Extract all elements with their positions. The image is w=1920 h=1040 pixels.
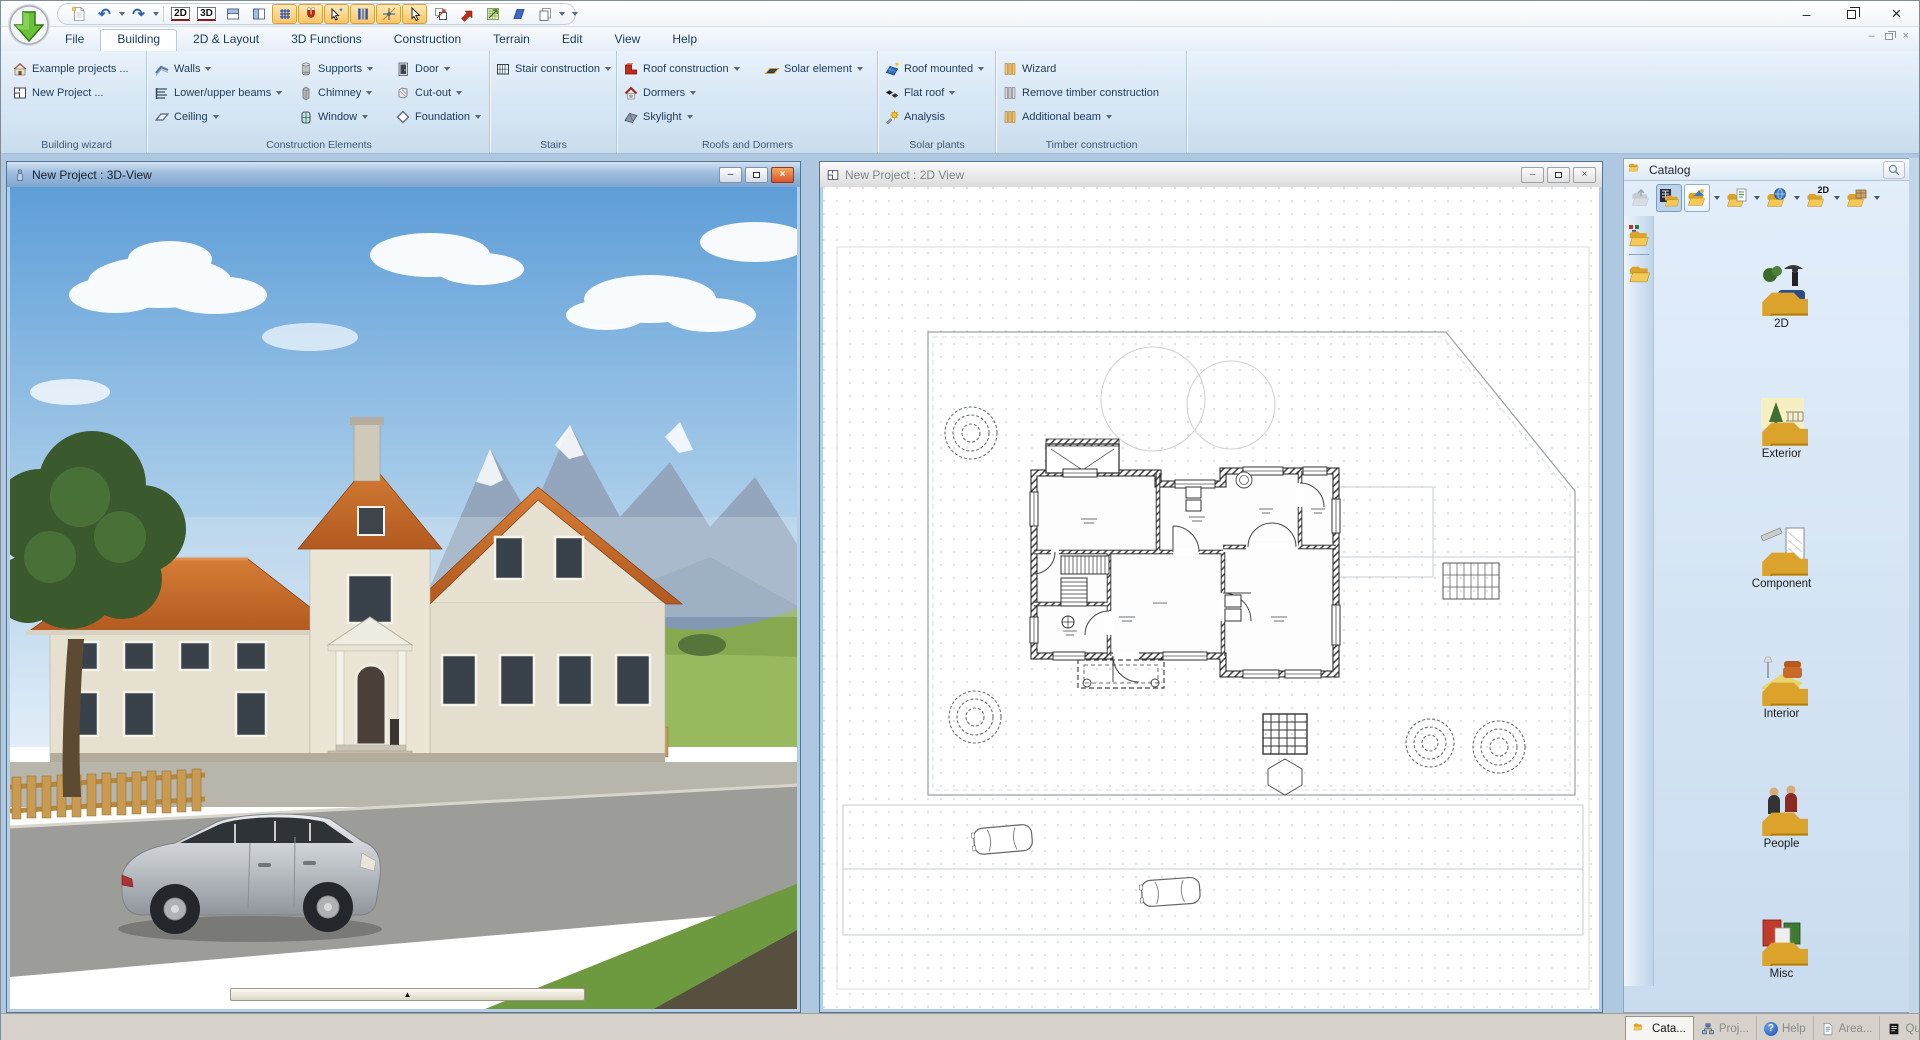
chevron-down-icon xyxy=(949,91,955,95)
catalog-item-list: 2D Exterior Component xyxy=(1654,216,1909,1010)
catalog-item-label: Misc xyxy=(1737,968,1827,980)
chevron-down-icon xyxy=(475,115,481,119)
ribbon-item-flat-roof[interactable]: Flat roof xyxy=(881,82,987,103)
3d-view-title-bar[interactable]: New Project : 3D-View – × xyxy=(7,162,800,187)
close-icon: × xyxy=(1892,4,1902,24)
main-title-bar[interactable]: ↶ ↷ 2D 3D – × xyxy=(1,1,1919,27)
ribbon-group-label: Construction Elements xyxy=(149,139,489,151)
customize-toolbar-icon[interactable] xyxy=(572,12,578,16)
ribbon-item-foundation[interactable]: Foundation xyxy=(392,106,484,127)
ribbon-item-label: Supports xyxy=(318,63,362,75)
ribbon-item-new-project[interactable]: New Project ... xyxy=(9,82,132,103)
catalog-item-label: Component xyxy=(1737,578,1827,590)
tab-help[interactable]: ? Help xyxy=(1757,1016,1814,1040)
quantities-tab-icon xyxy=(1887,1022,1901,1036)
chevron-down-icon xyxy=(456,91,462,95)
parallel-guides-toggle-button[interactable] xyxy=(350,4,375,24)
flat-roof-icon xyxy=(884,85,900,101)
tab-project[interactable]: Proj... xyxy=(1694,1016,1757,1040)
application-window: ↶ ↷ 2D 3D – × xyxy=(0,0,1920,1040)
chevron-down-icon xyxy=(687,115,693,119)
ribbon-item-roof-mounted[interactable]: Roof mounted xyxy=(881,58,987,79)
tilt-plane-button[interactable] xyxy=(506,4,531,24)
tab-2d-layout[interactable]: 2D & Layout xyxy=(177,29,275,51)
3d-view-title: New Project : 3D-View xyxy=(32,168,714,182)
grid-toggle-button[interactable] xyxy=(272,4,297,24)
ribbon-group-stairs: Stair construction Stairs xyxy=(491,51,617,153)
tab-edit[interactable]: Edit xyxy=(546,29,599,51)
chevron-down-icon xyxy=(857,67,863,71)
catalog-item-exterior[interactable]: Exterior xyxy=(1737,394,1827,460)
2d-view-canvas[interactable] xyxy=(823,187,1599,1009)
tab-label: Cata... xyxy=(1652,1023,1686,1035)
chimney-icon xyxy=(298,85,314,101)
2d-view-minimize-button[interactable]: – xyxy=(1521,167,1544,183)
2d-view-close-button[interactable]: × xyxy=(1573,167,1596,183)
ribbon-item-lower-upper-beams[interactable]: Lower/upper beams xyxy=(151,82,285,103)
catalog-item-component[interactable]: Component xyxy=(1737,524,1827,590)
ribbon-tab-row: File Building 2D & Layout 3D Functions C… xyxy=(1,27,1919,51)
catalog-item-people[interactable]: People xyxy=(1737,784,1827,850)
move-element-button[interactable] xyxy=(454,4,479,24)
ribbon-item-label: Ceiling xyxy=(174,111,208,123)
ribbon-group-label: Building wizard xyxy=(7,139,146,151)
ribbon-item-label: Roof construction xyxy=(643,63,729,75)
catalog-side-strip xyxy=(1624,216,1654,986)
chevron-down-icon xyxy=(362,115,368,119)
walls-icon xyxy=(154,61,170,77)
right-edge-strip xyxy=(1909,158,1919,1013)
folder-globe-icon xyxy=(1766,187,1788,209)
ribbon-item-label: Stair construction xyxy=(515,63,600,75)
project-tab-icon xyxy=(1701,1022,1715,1036)
3d-view-close-button[interactable]: × xyxy=(771,167,794,183)
catalog-objects-dropdown-icon[interactable] xyxy=(1714,196,1720,200)
chevron-down-icon xyxy=(690,91,696,95)
ribbon-item-stair-construction[interactable]: Stair construction xyxy=(492,58,614,79)
analysis-icon xyxy=(884,109,900,125)
dormers-icon xyxy=(623,85,639,101)
ribbon-item-window[interactable]: Window xyxy=(295,106,376,127)
3d-view-restore-button[interactable] xyxy=(745,167,768,183)
catalog-misc-thumbnail xyxy=(1756,914,1808,966)
ribbon-item-label: Analysis xyxy=(904,111,945,123)
catalog-search-button[interactable] xyxy=(1883,161,1905,179)
ribbon-item-label: Additional beam xyxy=(1022,111,1101,123)
cut-out-icon xyxy=(395,85,411,101)
restore-button[interactable] xyxy=(1829,1,1874,27)
ribbon-item-label: Solar element xyxy=(784,63,852,75)
window-icon xyxy=(298,109,314,125)
door-icon xyxy=(395,61,411,77)
pattern-fill-button[interactable] xyxy=(480,4,505,24)
catalog-item-label: 2D xyxy=(1737,318,1827,330)
ribbon-item-label: Foundation xyxy=(415,111,470,123)
ribbon-item-label: Chimney xyxy=(318,87,361,99)
view-2d-icon: 2D xyxy=(171,7,190,21)
solar-element-icon xyxy=(764,61,780,77)
scrollbar-marker-icon: ▲ xyxy=(403,990,411,999)
ribbon-group-label: Solar plants xyxy=(879,139,995,151)
tab-3d-functions[interactable]: 3D Functions xyxy=(275,29,378,51)
chevron-down-icon xyxy=(367,67,373,71)
toolbar-separator xyxy=(163,6,164,22)
ribbon-item-roof-construction[interactable]: Roof construction xyxy=(620,58,743,79)
new-project-icon xyxy=(12,85,28,101)
roof-construction-icon xyxy=(623,61,639,77)
window-3d-view: New Project : 3D-View – × xyxy=(6,161,801,1013)
ribbon-item-label: Skylight xyxy=(643,111,682,123)
transform-button[interactable] xyxy=(428,4,453,24)
tab-label: Proj... xyxy=(1719,1023,1749,1035)
folder-up-icon xyxy=(1630,187,1652,209)
ribbon-item-door[interactable]: Door xyxy=(392,58,484,79)
application-menu-button[interactable] xyxy=(7,2,51,48)
ribbon-group-timber-construction: Wizard Remove timber construction Additi… xyxy=(997,51,1187,153)
smart-select-toggle-button[interactable] xyxy=(324,4,349,24)
ribbon-item-label: Wizard xyxy=(1022,63,1056,75)
folder-objects-icon xyxy=(1686,187,1708,209)
tab-label: Qua... xyxy=(1905,1023,1920,1035)
quick-access-toolbar: ↶ ↷ 2D 3D xyxy=(57,3,576,25)
catalog-folder-icon xyxy=(1628,162,1644,178)
foundation-icon xyxy=(395,109,411,125)
mdi-close-button[interactable]: × xyxy=(1903,31,1909,42)
folder-icon xyxy=(1627,261,1651,285)
snap-magnet-toggle-button[interactable] xyxy=(298,4,323,24)
folder-document-icon xyxy=(1726,187,1748,209)
ribbon-item-label: Door xyxy=(415,63,439,75)
ribbon-item-label: New Project ... xyxy=(32,87,104,99)
catalog-item-label: Interior xyxy=(1737,708,1827,720)
bottom-strip: Cata... Proj... ? Help Area... Qua... xyxy=(1,1013,1919,1040)
ribbon: Example projects ... New Project ... Bui… xyxy=(1,51,1919,154)
view-3d-icon: 3D xyxy=(197,7,216,21)
ribbon-group-label: Stairs xyxy=(491,139,616,151)
search-icon xyxy=(1887,163,1901,177)
catalog-header: Catalog xyxy=(1624,159,1909,181)
redo-button[interactable]: ↷ xyxy=(126,4,151,24)
catalog-documents-button[interactable] xyxy=(1724,184,1750,212)
timber-wizard-icon xyxy=(1002,61,1018,77)
catalog-strip-letters-folder-button[interactable] xyxy=(1627,224,1651,248)
roof-mounted-icon xyxy=(884,61,900,77)
duplicate-button[interactable] xyxy=(532,4,557,24)
tab-construction[interactable]: Construction xyxy=(378,29,477,51)
catalog-interior-thumbnail xyxy=(1756,654,1808,706)
restore-icon xyxy=(1555,172,1562,178)
ribbon-item-label: Flat roof xyxy=(904,87,944,99)
ribbon-group-building-wizard: Example projects ... New Project ... Bui… xyxy=(7,51,147,153)
chevron-down-icon xyxy=(605,67,611,71)
ribbon-item-label: Roof mounted xyxy=(904,63,973,75)
axis-cross-toggle-button[interactable] xyxy=(376,4,401,24)
folder-letters-icon xyxy=(1627,224,1651,248)
minimize-icon: – xyxy=(1530,169,1536,180)
ceiling-icon xyxy=(154,109,170,125)
ribbon-item-dormers[interactable]: Dormers xyxy=(620,82,743,103)
3d-view-window-icon xyxy=(13,168,27,182)
catalog-item-misc[interactable]: Misc xyxy=(1737,914,1827,980)
tab-file[interactable]: File xyxy=(49,29,100,51)
ribbon-item-label: Example projects ... xyxy=(32,63,129,75)
remove-timber-icon xyxy=(1002,85,1018,101)
catalog-panel: Catalog 2D xyxy=(1623,158,1910,1013)
catalog-2d-button[interactable]: 2D xyxy=(1804,184,1830,212)
catalog-people-thumbnail xyxy=(1756,784,1808,836)
ribbon-item-chimney[interactable]: Chimney xyxy=(295,82,376,103)
ribbon-item-label: Cut-out xyxy=(415,87,451,99)
tab-label: Area... xyxy=(1839,1023,1873,1035)
ribbon-item-analysis[interactable]: Analysis xyxy=(881,106,987,127)
tab-catalog[interactable]: Cata... xyxy=(1625,1016,1694,1040)
catalog-2d-thumbnail xyxy=(1756,264,1808,316)
2d-view-title-bar[interactable]: New Project : 2D View – × xyxy=(820,162,1602,187)
catalog-tab-icon xyxy=(1633,1022,1648,1037)
ribbon-item-ceiling[interactable]: Ceiling xyxy=(151,106,285,127)
minimize-icon: – xyxy=(1803,6,1811,22)
mdi-minimize-button[interactable]: – xyxy=(1868,31,1874,42)
3d-view-canvas[interactable]: ▲ xyxy=(10,187,797,1009)
ribbon-item-label: Lower/upper beams xyxy=(174,87,271,99)
view-3d-button[interactable]: 3D xyxy=(194,4,219,24)
catalog-2d-dropdown-icon[interactable] xyxy=(1834,196,1840,200)
ribbon-group-label: Timber construction xyxy=(997,139,1186,151)
ribbon-item-solar-element[interactable]: Solar element xyxy=(761,58,866,79)
restore-icon xyxy=(1847,10,1856,19)
3d-render-scene xyxy=(10,187,797,1009)
ribbon-item-label: Walls xyxy=(174,63,200,75)
chevron-down-icon xyxy=(205,67,211,71)
help-tab-icon: ? xyxy=(1764,1022,1778,1036)
tab-building[interactable]: Building xyxy=(100,29,177,51)
folder-window-icon xyxy=(1658,187,1680,209)
example-projects-icon xyxy=(12,61,28,77)
catalog-strip-folder-button[interactable] xyxy=(1627,261,1651,285)
view-2d-button[interactable]: 2D xyxy=(168,4,193,24)
area-tab-icon xyxy=(1821,1022,1835,1036)
catalog-item-label: People xyxy=(1737,838,1827,850)
catalog-component-thumbnail xyxy=(1756,524,1808,576)
2d-view-title: New Project : 2D View xyxy=(845,168,1516,182)
undo-button[interactable]: ↶ xyxy=(92,4,117,24)
catalog-toolbar: 2D xyxy=(1624,181,1909,215)
new-document-button[interactable] xyxy=(66,4,91,24)
tab-help[interactable]: Help xyxy=(656,29,713,51)
close-icon: × xyxy=(1582,169,1588,180)
2d-label: 2D xyxy=(1817,185,1829,195)
chevron-down-icon xyxy=(444,67,450,71)
window-controls: – × xyxy=(1784,1,1919,27)
skylight-icon xyxy=(623,109,639,125)
ribbon-item-additional-beam[interactable]: Additional beam xyxy=(999,106,1162,127)
redo-icon: ↷ xyxy=(132,7,145,22)
tab-view[interactable]: View xyxy=(599,29,657,51)
minimize-icon: – xyxy=(728,169,734,180)
tab-label: Help xyxy=(1782,1023,1806,1035)
additional-beam-icon xyxy=(1002,109,1018,125)
catalog-documents-dropdown-icon[interactable] xyxy=(1754,196,1760,200)
2d-view-restore-button[interactable] xyxy=(1547,167,1570,183)
ribbon-item-supports[interactable]: Supports xyxy=(295,58,376,79)
redo-dropdown-arrow-icon[interactable] xyxy=(153,12,159,16)
3d-view-scrollbar[interactable]: ▲ xyxy=(230,988,584,1001)
catalog-item-2d[interactable]: 2D xyxy=(1737,264,1827,330)
minimize-button[interactable]: – xyxy=(1784,1,1829,27)
duplicate-dropdown-arrow-icon[interactable] xyxy=(559,12,565,16)
close-button[interactable]: × xyxy=(1874,1,1919,27)
catalog-internet-dropdown-icon[interactable] xyxy=(1794,196,1800,200)
ribbon-item-remove-timber-construction[interactable]: Remove timber construction xyxy=(999,82,1162,103)
catalog-title: Catalog xyxy=(1649,163,1878,177)
chevron-down-icon xyxy=(734,67,740,71)
ribbon-item-skylight[interactable]: Skylight xyxy=(620,106,743,127)
split-vertical-button[interactable] xyxy=(246,4,271,24)
catalog-internet-button[interactable] xyxy=(1764,184,1790,212)
ribbon-item-walls[interactable]: Walls xyxy=(151,58,285,79)
mdi-restore-button[interactable] xyxy=(1885,33,1893,40)
undo-dropdown-arrow-icon[interactable] xyxy=(119,12,125,16)
panel-tab-bar: Cata... Proj... ? Help Area... Qua... xyxy=(1625,1016,1920,1040)
ribbon-item-wizard[interactable]: Wizard xyxy=(999,58,1162,79)
strip-separator xyxy=(1629,254,1649,255)
ribbon-item-label: Window xyxy=(318,111,357,123)
tab-area[interactable]: Area... xyxy=(1814,1016,1881,1040)
chevron-down-icon xyxy=(978,67,984,71)
supports-icon xyxy=(298,61,314,77)
catalog-box-dropdown-icon[interactable] xyxy=(1874,196,1880,200)
mdi-window-controls: – × xyxy=(1868,31,1909,42)
2d-view-window-icon xyxy=(826,168,840,182)
chevron-down-icon xyxy=(276,91,282,95)
beams-icon xyxy=(154,85,170,101)
chevron-down-icon xyxy=(213,115,219,119)
select-tool-button[interactable] xyxy=(402,4,427,24)
ribbon-item-cut-out[interactable]: Cut-out xyxy=(392,82,484,103)
chevron-down-icon xyxy=(1106,115,1112,119)
ribbon-group-construction-elements: Walls Lower/upper beams Ceiling Supports… xyxy=(149,51,490,153)
ribbon-group-label: Roofs and Dormers xyxy=(618,139,877,151)
ribbon-group-roofs-and-dormers: Roof construction Dormers Skylight Solar… xyxy=(618,51,878,153)
catalog-up-button[interactable] xyxy=(1628,184,1654,212)
close-icon: × xyxy=(780,169,786,180)
ribbon-item-label: Dormers xyxy=(643,87,685,99)
ribbon-tabs: File Building 2D & Layout 3D Functions C… xyxy=(49,29,713,51)
undo-icon: ↶ xyxy=(98,7,111,22)
floor-plan-drawing xyxy=(823,187,1599,1009)
catalog-box-button[interactable] xyxy=(1844,184,1870,212)
window-2d-view: New Project : 2D View – × xyxy=(819,161,1603,1013)
tab-terrain[interactable]: Terrain xyxy=(477,29,546,51)
ribbon-item-label: Remove timber construction xyxy=(1022,87,1159,99)
restore-icon xyxy=(753,172,760,178)
catalog-exterior-thumbnail xyxy=(1756,394,1808,446)
catalog-item-label: Exterior xyxy=(1737,448,1827,460)
catalog-windows-button[interactable] xyxy=(1656,184,1682,212)
stair-construction-icon xyxy=(495,61,511,77)
tab-quantities[interactable]: Qua... xyxy=(1880,1016,1920,1040)
ribbon-item-example-projects[interactable]: Example projects ... xyxy=(9,58,132,79)
ribbon-group-solar-plants: Roof mounted Flat roof Analysis Solar pl… xyxy=(879,51,996,153)
3d-view-minimize-button[interactable]: – xyxy=(719,167,742,183)
split-horizontal-button[interactable] xyxy=(220,4,245,24)
catalog-item-interior[interactable]: Interior xyxy=(1737,654,1827,720)
chevron-down-icon xyxy=(366,91,372,95)
catalog-objects-button[interactable] xyxy=(1684,184,1710,212)
folder-box-icon xyxy=(1846,187,1868,209)
